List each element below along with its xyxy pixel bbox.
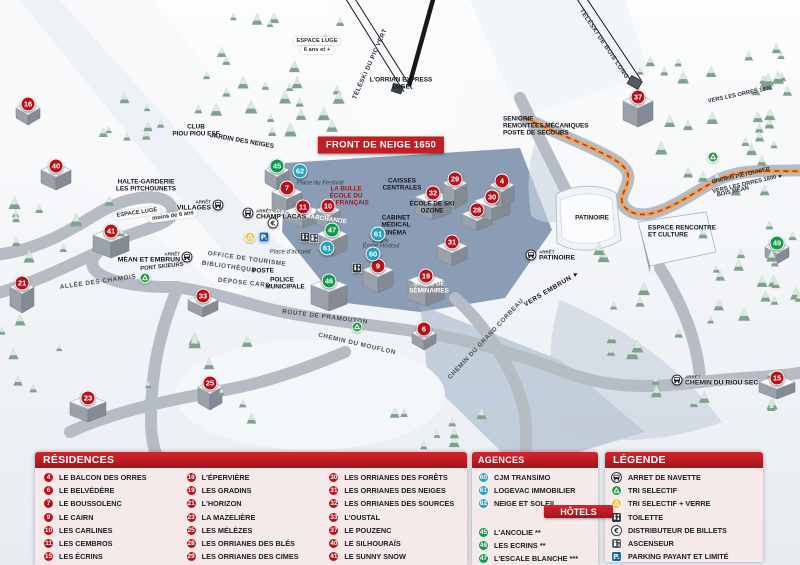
- front-de-neige-banner: FRONT DE NEIGE 1650: [318, 137, 444, 154]
- toilette-icon: [352, 263, 363, 274]
- map-marker-19: 19: [419, 269, 434, 284]
- bus-stop-icon: [213, 200, 224, 211]
- stop-name: MÉAN ET EMBRUN: [118, 256, 180, 263]
- legend-item: 16L'ÉPERVIÈRE: [180, 471, 323, 484]
- map-label: ÉCOLE DE SKI: [409, 201, 454, 208]
- map-marker-15: 15: [770, 371, 785, 386]
- map-label: CENTRALES: [382, 185, 421, 192]
- item-label: TRI SELECTIF: [628, 486, 677, 495]
- map-label: LES PITCHOUNETS: [116, 186, 176, 193]
- map-marker-7: 7: [280, 181, 295, 196]
- map-marker-61: 61: [371, 227, 386, 242]
- legend-item: 40LE SILHOURAÏS: [322, 537, 465, 550]
- parking-icon: P.: [611, 551, 623, 563]
- map-marker-31: 31: [445, 235, 460, 250]
- item-label: LES ORRIANES DES BLÉS: [202, 539, 295, 548]
- map-label: POLICE: [270, 277, 294, 284]
- map-label: L'ORRIAN EXPRESS: [370, 77, 433, 84]
- map-label: DÉPOSE CARS: [218, 277, 271, 289]
- map-label: POSTE: [252, 268, 274, 275]
- item-number-badge: 29: [186, 551, 197, 562]
- map-marker-46: 46: [322, 274, 337, 289]
- legend-item: 15LES ÉCRINS: [37, 550, 180, 563]
- item-number-badge: 6: [43, 485, 54, 496]
- map-label: MUNICIPALE: [265, 284, 304, 291]
- residences-column-1: 4LE BALCON DES ORRES6LE BELVÉDÈRE7LE BOU…: [37, 471, 180, 563]
- bus-stop-label: ARRÊTPATINOIRE: [539, 249, 575, 261]
- map-marker-47: 47: [325, 223, 340, 238]
- map-label: CHEMIN DU GRAND CORBEAU: [447, 297, 526, 381]
- map-label: PATINOIRE: [575, 215, 609, 222]
- map-label: HALTE-GARDERIE: [118, 179, 175, 186]
- residences-column-3: 30LES ORRIANES DES FORÊTS31LES ORRIANES …: [322, 471, 465, 563]
- item-label: L'ESCALE BLANCHE ***: [494, 554, 578, 563]
- residences-columns: 4LE BALCON DES ORRES6LE BELVÉDÈRE7LE BOU…: [35, 468, 467, 565]
- item-number-badge: 45: [478, 527, 489, 538]
- item-label: LE BOUSSOLENC: [59, 499, 122, 508]
- item-label: TRI SELECTIF + VERRE: [628, 499, 711, 508]
- item-number-badge: 11: [43, 538, 54, 549]
- item-label: L'ÉPERVIÈRE: [202, 473, 250, 482]
- legende-panel: LÉGENDE ARRET DE NAVETTETRI SELECTIFTRI …: [605, 452, 763, 562]
- item-label: LA MAZELIÈRE: [202, 513, 256, 522]
- bus-stop-icon: [243, 208, 254, 219]
- legend-item: 47L'ESCALE BLANCHE ***: [472, 552, 598, 565]
- legend-item: TRI SELECTIF + VERRE: [605, 497, 763, 510]
- map-marker-61: 61: [320, 241, 335, 256]
- svg-text:P.: P.: [613, 552, 620, 561]
- legend-item: 6LE BELVÉDÈRE: [37, 484, 180, 497]
- legend-item: 29LES ORRIANES DES CIMES: [180, 550, 323, 563]
- map-label: VERS LES ORRES 1800: [707, 85, 772, 104]
- map-marker-29: 29: [448, 172, 463, 187]
- item-number-badge: 46: [478, 540, 489, 551]
- map-marker-62: 62: [293, 164, 308, 179]
- recycle-green-icon: [352, 322, 363, 333]
- legend-item: ARRET DE NAVETTE: [605, 471, 763, 484]
- svg-text:P.: P.: [261, 233, 268, 242]
- item-number-badge: 37: [328, 525, 339, 536]
- bus-icon: [611, 472, 623, 484]
- map-marker-25: 25: [203, 376, 218, 391]
- map-marker-45: 45: [270, 159, 285, 174]
- legend-item: P.PARKING PAYANT ET LIMITÉ: [605, 550, 763, 563]
- legend-item: 19LES GRADINS: [180, 484, 323, 497]
- legend-item: 4LE BALCON DES ORRES: [37, 471, 180, 484]
- map-marker-40: 40: [49, 159, 64, 174]
- legend-item: ASCENSEUR: [605, 537, 763, 550]
- map-label: Place d'accueil: [269, 249, 310, 256]
- map-label: OZONE: [421, 208, 444, 215]
- map-marker-11: 11: [296, 200, 311, 215]
- item-label: LE SUNNY SNOW: [344, 552, 406, 561]
- item-label: ARRET DE NAVETTE: [628, 473, 701, 482]
- legend-item: 9LE CAIRN: [37, 511, 180, 524]
- legend-item: 41LE SUNNY SNOW: [322, 550, 465, 563]
- map-label: ESPACE RENCONTRE: [648, 225, 716, 232]
- map-marker-41: 41: [104, 224, 119, 239]
- item-number-badge: 21: [186, 498, 197, 509]
- residences-column-2: 16L'ÉPERVIÈRE19LES GRADINS21L'HORIZON23L…: [180, 471, 323, 563]
- item-number-badge: 31: [328, 485, 339, 496]
- map-marker-23: 23: [81, 391, 96, 406]
- item-number-badge: 15: [43, 551, 54, 562]
- recycle-green-icon: [611, 485, 623, 497]
- item-label: LE CAIRN: [59, 513, 93, 522]
- map-label: TÉLÉSKI DE BOIS LONG: [578, 8, 630, 81]
- item-label: DISTRIBUTEUR DE BILLETS: [628, 526, 727, 535]
- bus-stop-label: ARRÊTMÉAN ET EMBRUN: [118, 251, 180, 263]
- map-label: CHEMIN DU MOUFLON: [317, 332, 396, 357]
- legend-item: TRI SELECTIF: [605, 484, 763, 497]
- map-label: ÉCOLE DU: [329, 193, 362, 200]
- legend-item: 61LOGEVAC IMMOBILIER: [472, 484, 598, 497]
- legend-item: 46LES ECRINS **: [472, 539, 598, 552]
- item-number-badge: 4: [43, 472, 54, 483]
- elevator-icon: [309, 233, 320, 244]
- item-label: LES ORRIANES DES CIMES: [202, 552, 299, 561]
- svg-text:€: €: [270, 219, 276, 227]
- map-label: ET CULTURE: [648, 232, 688, 239]
- item-number-badge: 16: [186, 472, 197, 483]
- item-number-badge: 47: [478, 553, 489, 564]
- elevator-icon: [611, 538, 623, 550]
- item-label: LES MÉLÈZES: [202, 526, 253, 535]
- map-label: ALLÉE DES CHAMOIS: [59, 273, 136, 291]
- residences-title: RÉSIDENCES: [35, 452, 467, 468]
- item-label: LE SILHOURAÏS: [344, 539, 400, 548]
- item-number-badge: 32: [328, 498, 339, 509]
- map-marker-30: 30: [485, 190, 500, 205]
- map-label: TÉLÉSKI DU PIC VERT: [351, 28, 389, 101]
- item-label: LES CARLINES: [59, 526, 113, 535]
- agences-title: AGENCES IMMOBILIÈRES: [472, 452, 598, 468]
- item-label: LES ORRIANES DES NEIGES: [344, 486, 445, 495]
- resort-map: TÉLÉSKI DU PIC VERTTÉLÉSKI DE BOIS LONGL…: [0, 0, 800, 565]
- item-number-badge: 33: [328, 512, 339, 523]
- bus-stop-icon: [182, 252, 193, 263]
- residences-panel: RÉSIDENCES 4LE BALCON DES ORRES6LE BELVÉ…: [35, 452, 467, 565]
- item-label: LE BELVÉDÈRE: [59, 486, 114, 495]
- map-marker-10: 10: [321, 199, 336, 214]
- legende-rows: ARRET DE NAVETTETRI SELECTIFTRI SELECTIF…: [605, 468, 763, 563]
- legend-item: 37LE POUZENC: [322, 524, 465, 537]
- legend-item: TOILETTE: [605, 511, 763, 524]
- legend-item: 31LES ORRIANES DES NEIGES: [322, 484, 465, 497]
- map-label: ESPACE LUGE: [293, 37, 340, 45]
- legend-item: 21L'HORIZON: [180, 497, 323, 510]
- map-label: CABINET: [382, 215, 410, 222]
- map-label: 6 ans et +: [301, 46, 334, 54]
- map-marker-28: 28: [470, 203, 485, 218]
- map-label: SENIORIE: [503, 116, 534, 123]
- map-marker-37: 37: [631, 90, 646, 105]
- item-label: ASCENSEUR: [628, 539, 674, 548]
- item-number-badge: 25: [186, 525, 197, 536]
- map-marker-4: 4: [495, 174, 510, 189]
- stop-name: CHEMIN DU RIOU SEC: [685, 379, 758, 386]
- legend-item: 23LA MAZELIÈRE: [180, 511, 323, 524]
- recycle-green-icon: [140, 273, 151, 284]
- map-marker-49: 49: [770, 236, 785, 251]
- item-number-badge: 23: [186, 512, 197, 523]
- item-label: LOGEVAC IMMOBILIER: [494, 486, 575, 495]
- legend-item: 25LES MÉLÈZES: [180, 524, 323, 537]
- bus-stop-label: ARRÊTCHEMIN DU RIOU SEC: [685, 374, 758, 386]
- legend-item: 33L'OUSTAL: [322, 511, 465, 524]
- map-label: Place du Festival: [296, 180, 343, 187]
- map-marker-32: 32: [426, 186, 441, 201]
- item-number-badge: 61: [478, 485, 489, 496]
- map-marker-33: 33: [196, 289, 211, 304]
- stop-name: PATINOIRE: [539, 254, 575, 261]
- map-label: JARDIN DES NEIGES: [210, 132, 275, 150]
- item-label: LE BALCON DES ORRES: [59, 473, 147, 482]
- bus-stop-icon: [526, 250, 537, 261]
- legende-title: LÉGENDE: [605, 452, 763, 468]
- svg-text:€: €: [613, 527, 619, 535]
- item-label: CJM TRANSIMO: [494, 473, 550, 482]
- item-label: LES ORRIANES DES SOURCES: [344, 499, 454, 508]
- legend-item: 28LES ORRIANES DES BLÉS: [180, 537, 323, 550]
- map-marker-21: 21: [15, 276, 30, 291]
- item-label: LES GRADINS: [202, 486, 252, 495]
- item-number-badge: 9: [43, 512, 54, 523]
- item-label: LES ÉCRINS: [59, 552, 103, 561]
- bus-stop-icon: [672, 375, 683, 386]
- item-number-badge: 41: [328, 551, 339, 562]
- item-label: PARKING PAYANT ET LIMITÉ: [628, 552, 729, 561]
- item-number-badge: 28: [186, 538, 197, 549]
- recycle-yellow-icon: [245, 232, 256, 243]
- item-number-badge: 10: [43, 525, 54, 536]
- map-label: VERS EMBRUN ►: [523, 270, 581, 309]
- item-number-badge: 40: [328, 538, 339, 549]
- map-label: CAISSES: [388, 178, 416, 185]
- item-label: L'HORIZON: [202, 499, 242, 508]
- map-label: REMONTÉES MÉCANIQUES: [503, 123, 589, 130]
- item-number-badge: 30: [328, 472, 339, 483]
- legend-item: 32LES ORRIANES DES SOURCES: [322, 497, 465, 510]
- map-marker-6: 6: [417, 322, 432, 337]
- item-label: L'ANCOLIE **: [494, 528, 541, 537]
- item-number-badge: 7: [43, 498, 54, 509]
- legend-item: 30LES ORRIANES DES FORÊTS: [322, 471, 465, 484]
- item-number-badge: 19: [186, 485, 197, 496]
- map-label: MÉDICAL: [381, 222, 410, 229]
- hotels-rows: 45L'ANCOLIE **46LES ECRINS **47L'ESCALE …: [472, 526, 598, 565]
- map-marker-16: 16: [21, 97, 36, 112]
- item-label: LES CEMBROS: [59, 539, 113, 548]
- euro-icon: €: [611, 524, 623, 536]
- legend-item: 10LES CARLINES: [37, 524, 180, 537]
- item-label: LE POUZENC: [344, 526, 391, 535]
- item-label: TOILETTE: [628, 513, 663, 522]
- bus-stop-label: ARRÊTVILLAGES: [177, 199, 211, 211]
- hotels-title: HÔTELS: [544, 505, 613, 518]
- stop-name: CHAMP LACAS: [256, 213, 306, 220]
- item-label: LES ORRIANES DES FORÊTS: [344, 473, 447, 482]
- map-marker-60: 60: [366, 247, 381, 262]
- legend-item: €DISTRIBUTEUR DE BILLETS: [605, 524, 763, 537]
- map-label: SÉMINAIRES: [409, 288, 449, 295]
- map-label: POSTE DE SECOURS: [503, 130, 569, 137]
- stop-name: VILLAGES: [177, 204, 211, 211]
- item-number-badge: 62: [478, 498, 489, 509]
- recycle-green-icon: [708, 152, 719, 163]
- legend-item: 7LE BOUSSOLENC: [37, 497, 180, 510]
- item-label: LES ECRINS **: [494, 541, 546, 550]
- legend-item: 45L'ANCOLIE **: [472, 526, 598, 539]
- map-label: LUGE: [392, 84, 410, 91]
- parking-icon: P.: [259, 232, 270, 243]
- map-label: CLUB: [187, 124, 205, 131]
- euro-icon: €: [268, 218, 279, 229]
- map-label: LA BULLE: [330, 186, 361, 193]
- item-label: L'OUSTAL: [344, 513, 380, 522]
- legend-item: 11LES CEMBROS: [37, 537, 180, 550]
